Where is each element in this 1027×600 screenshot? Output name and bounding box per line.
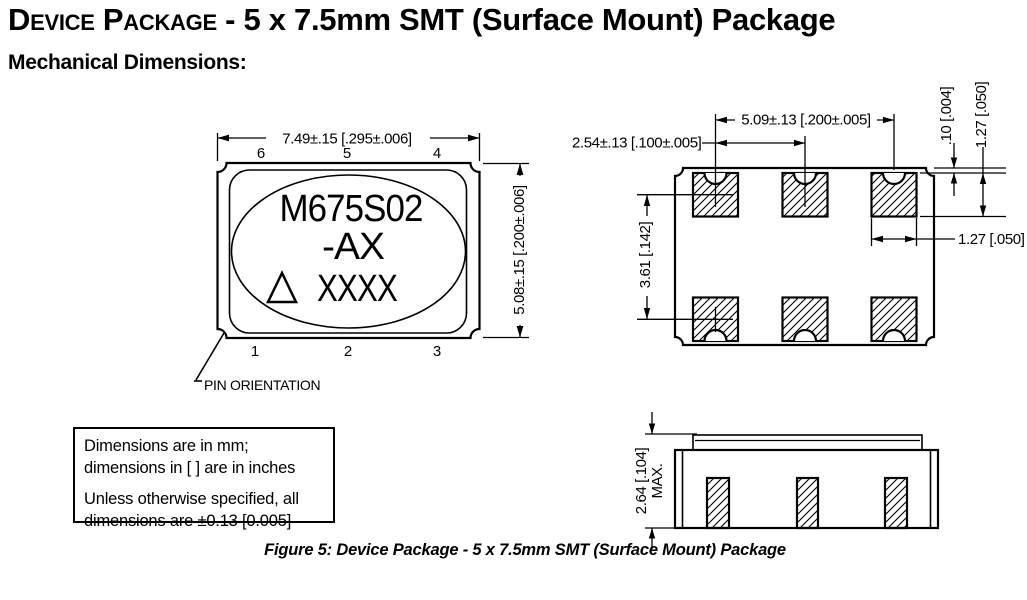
- max-height-label: 2.64 [.104]: [633, 448, 650, 515]
- solder-pad-3: [872, 298, 917, 342]
- dimension-height-label: 5.08±.15 [.200±.006]: [511, 185, 528, 315]
- pin-orientation-label: PIN ORIENTATION: [204, 377, 320, 393]
- arrowhead-down: [980, 206, 986, 217]
- marking-part-number: M675S02: [280, 188, 423, 230]
- notes-line-3: Unless otherwise specified, all: [84, 490, 299, 508]
- arrowhead-right: [883, 117, 894, 123]
- dimension-pad-pitch: 2.54±.13 [.100±.005]: [572, 135, 805, 152]
- pin-orientation-callout: PIN ORIENTATION: [194, 333, 320, 393]
- notes-line-1: Dimensions are in mm;: [84, 437, 249, 455]
- pin-number-1: 1: [251, 343, 259, 360]
- pad-height-label: 1.27 [.050]: [973, 82, 990, 149]
- arrowhead-up: [649, 528, 655, 539]
- arrowhead-down: [644, 308, 650, 319]
- dimension-package-height: 5.08±.15 [.200±.006]: [483, 164, 529, 338]
- pin-number-2: 2: [344, 343, 352, 360]
- leader-line: [196, 333, 224, 380]
- pad-width-label: 1.27 [.050]: [958, 231, 1025, 248]
- lid-outline: [693, 435, 922, 450]
- arrowhead-right: [794, 140, 805, 146]
- pin-number-5: 5: [343, 145, 351, 162]
- notes-line-4: dimensions are ±0.13 [0.005]: [84, 512, 291, 530]
- dimension-pad-span: 5.09±.13 [.200±.005]: [716, 112, 895, 129]
- notes-units: Dimensions are in mm;dimensions in [ ] a…: [84, 435, 333, 479]
- arrowhead-up: [517, 164, 524, 176]
- arrowhead-down: [649, 424, 655, 435]
- side-pad: [707, 478, 729, 528]
- marking-datecode: XXXX: [317, 268, 398, 310]
- arrowhead-left: [716, 117, 728, 123]
- marking-suffix: -AX: [322, 226, 385, 268]
- package-top-view: M675S02 -AX XXXX 7.49±.15 [.295±.006] 6 …: [194, 130, 529, 393]
- arrowhead-down: [951, 158, 957, 169]
- pad-pitch-label: 2.54±.13 [.100±.005]: [572, 135, 702, 152]
- pin-number-3: 3: [433, 343, 441, 360]
- edge-offset-label: .10 [.004]: [938, 86, 955, 145]
- pin-number-6: 6: [257, 145, 265, 162]
- notes-box: Dimensions are in mm;dimensions in [ ] a…: [73, 427, 335, 523]
- land-pattern-view: 5.09±.13 [.200±.005] 2.54±.13 [.100±.005…: [572, 82, 1025, 345]
- solder-pad-2: [783, 298, 828, 342]
- row-spacing-label: 3.61 [.142]: [637, 222, 654, 289]
- arrowhead-down: [517, 326, 524, 338]
- figure-caption: Figure 5: Device Package - 5 x 7.5mm SMT…: [125, 541, 925, 560]
- arrowhead-up: [644, 195, 650, 206]
- max-suffix-label: MAX.: [649, 463, 666, 498]
- package-side-view: 2.64 [.104] MAX.: [633, 412, 938, 549]
- side-pad: [885, 478, 907, 528]
- arrowhead-up: [951, 173, 957, 184]
- solder-pad-4: [872, 173, 917, 217]
- pin-number-4: 4: [433, 145, 441, 162]
- side-pad: [797, 478, 818, 528]
- arrowhead-right: [468, 135, 480, 142]
- notes-tolerance: Unless otherwise specified, alldimension…: [84, 488, 333, 532]
- arrowhead-left: [716, 140, 728, 146]
- arrowhead-up: [980, 173, 986, 184]
- arrowhead-left: [218, 135, 230, 142]
- notes-line-2: dimensions in [ ] are in inches: [84, 459, 295, 477]
- pad-span-label: 5.09±.13 [.200±.005]: [741, 112, 871, 129]
- datasheet-page: Device Package - 5 x 7.5mm SMT (Surface …: [0, 0, 1027, 600]
